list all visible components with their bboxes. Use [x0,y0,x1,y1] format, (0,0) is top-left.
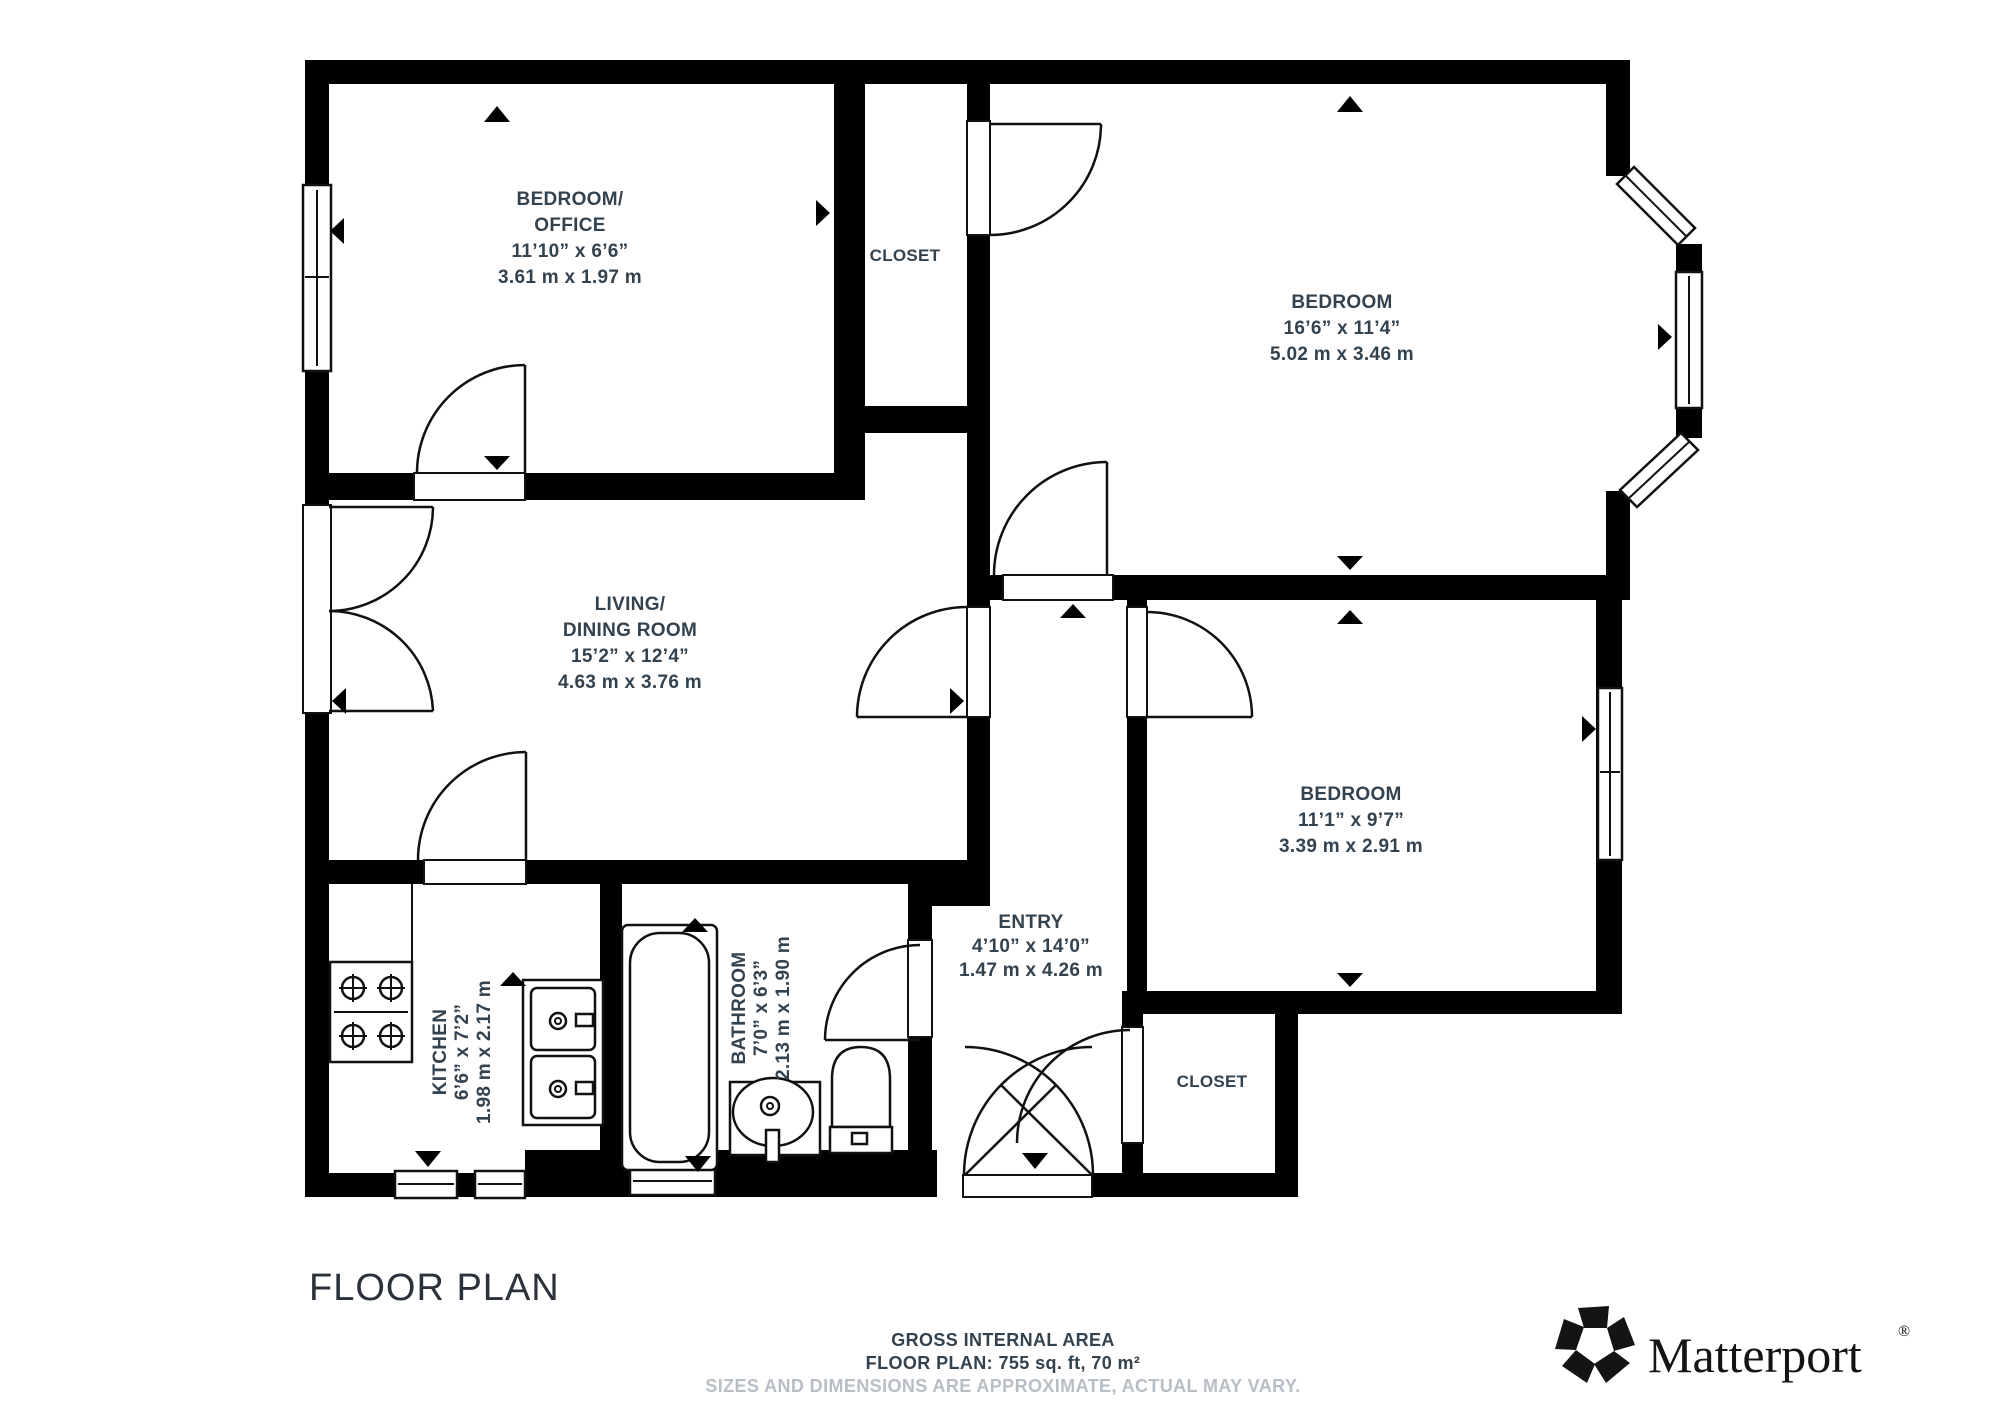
view-marker-icon [950,688,964,714]
wall-bay-top-column [1606,84,1630,176]
room-name: KITCHEN [430,1009,451,1096]
room-name: BEDROOM [1291,292,1392,313]
window-kitchen-right [475,1171,525,1198]
room-label-living-dining: LIVING/ DINING ROOM 15’2” x 12’4” 4.63 m… [558,594,702,693]
room-dimensions-metric: 1.98 m x 2.17 m [474,980,495,1124]
room-name: BATHROOM [729,952,750,1065]
room-label-kitchen: KITCHEN 6’6” x 7’2” 1.98 m x 2.17 m [430,980,495,1124]
jamb-kitchen-door [424,860,526,884]
registered-trademark-symbol: ® [1898,1323,1910,1340]
gross-internal-area-value: FLOOR PLAN: 755 sq. ft, 70 m² [866,1353,1141,1373]
door-bathroom [825,945,920,1040]
room-dimensions-metric: 2.13 m x 1.90 m [773,936,794,1080]
room-name: OFFICE [534,215,605,236]
room-dimensions-metric: 3.39 m x 2.91 m [1279,836,1423,857]
door-kitchen [418,752,526,860]
room-dimensions-metric: 3.61 m x 1.97 m [498,267,642,288]
room-dimensions-imperial: 11’10” x 6’6” [512,241,629,262]
room-dimensions-imperial: 7’0” x 6’3” [751,960,772,1056]
wall-bottom-bathroom [525,1150,937,1197]
wall-closet-top-bottom [834,406,969,433]
room-name: ENTRY [998,912,1063,933]
wall-top-exterior [305,60,1630,84]
room-dimensions-imperial: 15’2” x 12’4” [571,646,689,667]
view-marker-icon [1337,973,1363,987]
room-label-bathroom: BATHROOM 7’0” x 6’3” 2.13 m x 1.90 m [729,936,794,1080]
wall-living-bottom [305,860,990,884]
view-marker-icon [1060,604,1086,618]
window-bedroom-office-left [303,185,331,371]
stove [330,884,412,1062]
door-bedroom1 [994,462,1107,575]
room-dimensions-metric: 4.63 m x 3.76 m [558,672,702,693]
room-name: DINING ROOM [563,620,697,641]
view-marker-icon [1337,556,1363,570]
brand-logo: Matterport ® [1555,1306,1910,1383]
wall-bedroom2-bottom [1122,991,1622,1014]
jamb-closet-top-door [967,121,990,235]
wall-closet2-right [1275,1014,1298,1197]
wall-closet-top-left [834,84,865,500]
room-label-closet-top: CLOSET [870,246,941,265]
view-marker-icon [1337,96,1363,112]
floor-plan-page: BEDROOM/ OFFICE 11’10” x 6’6” 3.61 m x 1… [0,0,2000,1412]
room-dimensions-metric: 1.47 m x 4.26 m [959,960,1103,981]
jamb-bedroom1-door [1003,575,1113,600]
jamb-living-entry-door [967,607,990,717]
windows [303,167,1702,1198]
jamb-closet2-door [1122,1027,1143,1143]
view-marker-icon [1022,1153,1048,1169]
jamb-bedroom2-door [1127,607,1147,717]
room-dimensions-imperial: 6’6” x 7’2” [452,1004,473,1100]
view-marker-icon [816,200,830,226]
jamb-entry-main-door [963,1175,1092,1197]
disclaimer-text: SIZES AND DIMENSIONS ARE APPROXIMATE, AC… [705,1376,1300,1396]
view-marker-icon [484,456,510,470]
room-dimensions-imperial: 16’6” x 11’4” [1284,318,1401,339]
door-closet2 [1017,1030,1130,1143]
window-bay-upper-diagonal [1617,167,1695,245]
room-label-bedroom-top-right: BEDROOM 16’6” x 11’4” 5.02 m x 3.46 m [1270,292,1414,365]
room-label-bedroom-office: BEDROOM/ OFFICE 11’10” x 6’6” 3.61 m x 1… [498,189,642,288]
view-marker-icon [1582,716,1596,742]
walls [305,60,1702,1197]
matterport-pinwheel-icon [1555,1306,1635,1383]
floor-plan-drawing: BEDROOM/ OFFICE 11’10” x 6’6” 3.61 m x 1… [0,0,2000,1412]
room-name: LIVING/ [595,594,666,615]
view-marker-icon [415,1151,441,1167]
room-name: BEDROOM/ [517,189,624,210]
room-label-bedroom-lower-right: BEDROOM 11’1” x 9’7” 3.39 m x 2.91 m [1279,784,1423,857]
bathtub [622,925,717,1170]
door-closet-top-to-bedroom [990,124,1101,235]
room-label-closet-bottom: CLOSET [1177,1072,1248,1091]
room-dimensions-imperial: 4’10” x 14’0” [972,936,1090,957]
wall-bay-stub-top [1676,244,1702,272]
window-kitchen-left [395,1171,457,1198]
page-title: FLOOR PLAN [309,1267,560,1309]
view-marker-icon [1658,324,1672,350]
wall-bay-bottom-column [1606,491,1630,580]
window-bedroom2-right [1598,688,1622,860]
toilet [830,1047,892,1153]
view-marker-icon [484,106,510,122]
footer: GROSS INTERNAL AREA FLOOR PLAN: 755 sq. … [705,1330,1300,1396]
window-bay-lower-diagonal [1620,433,1698,507]
room-dimensions-metric: 5.02 m x 3.46 m [1270,344,1414,365]
room-dimensions-imperial: 11’1” x 9’7” [1298,810,1404,831]
door-french-living [329,507,433,711]
jamb-bedroom-office-door [414,473,525,500]
gross-internal-area-label: GROSS INTERNAL AREA [891,1330,1115,1350]
door-bedroom2 [1147,612,1252,717]
room-label-entry: ENTRY 4’10” x 14’0” 1.47 m x 4.26 m [959,912,1103,981]
jamb-bathroom-door [908,940,932,1037]
room-name: BEDROOM [1300,784,1401,805]
window-bay-center [1676,272,1702,408]
wall-bedroom-office-bottom [305,473,865,500]
kitchen-sink [523,980,603,1125]
window-bathroom-bottom [630,1168,715,1195]
bathroom-sink [730,1078,820,1162]
wall-entry-jog [908,884,990,906]
view-marker-icon [1337,610,1363,624]
jamb-french-doors [303,505,331,713]
brand-wordmark: Matterport [1648,1327,1862,1383]
